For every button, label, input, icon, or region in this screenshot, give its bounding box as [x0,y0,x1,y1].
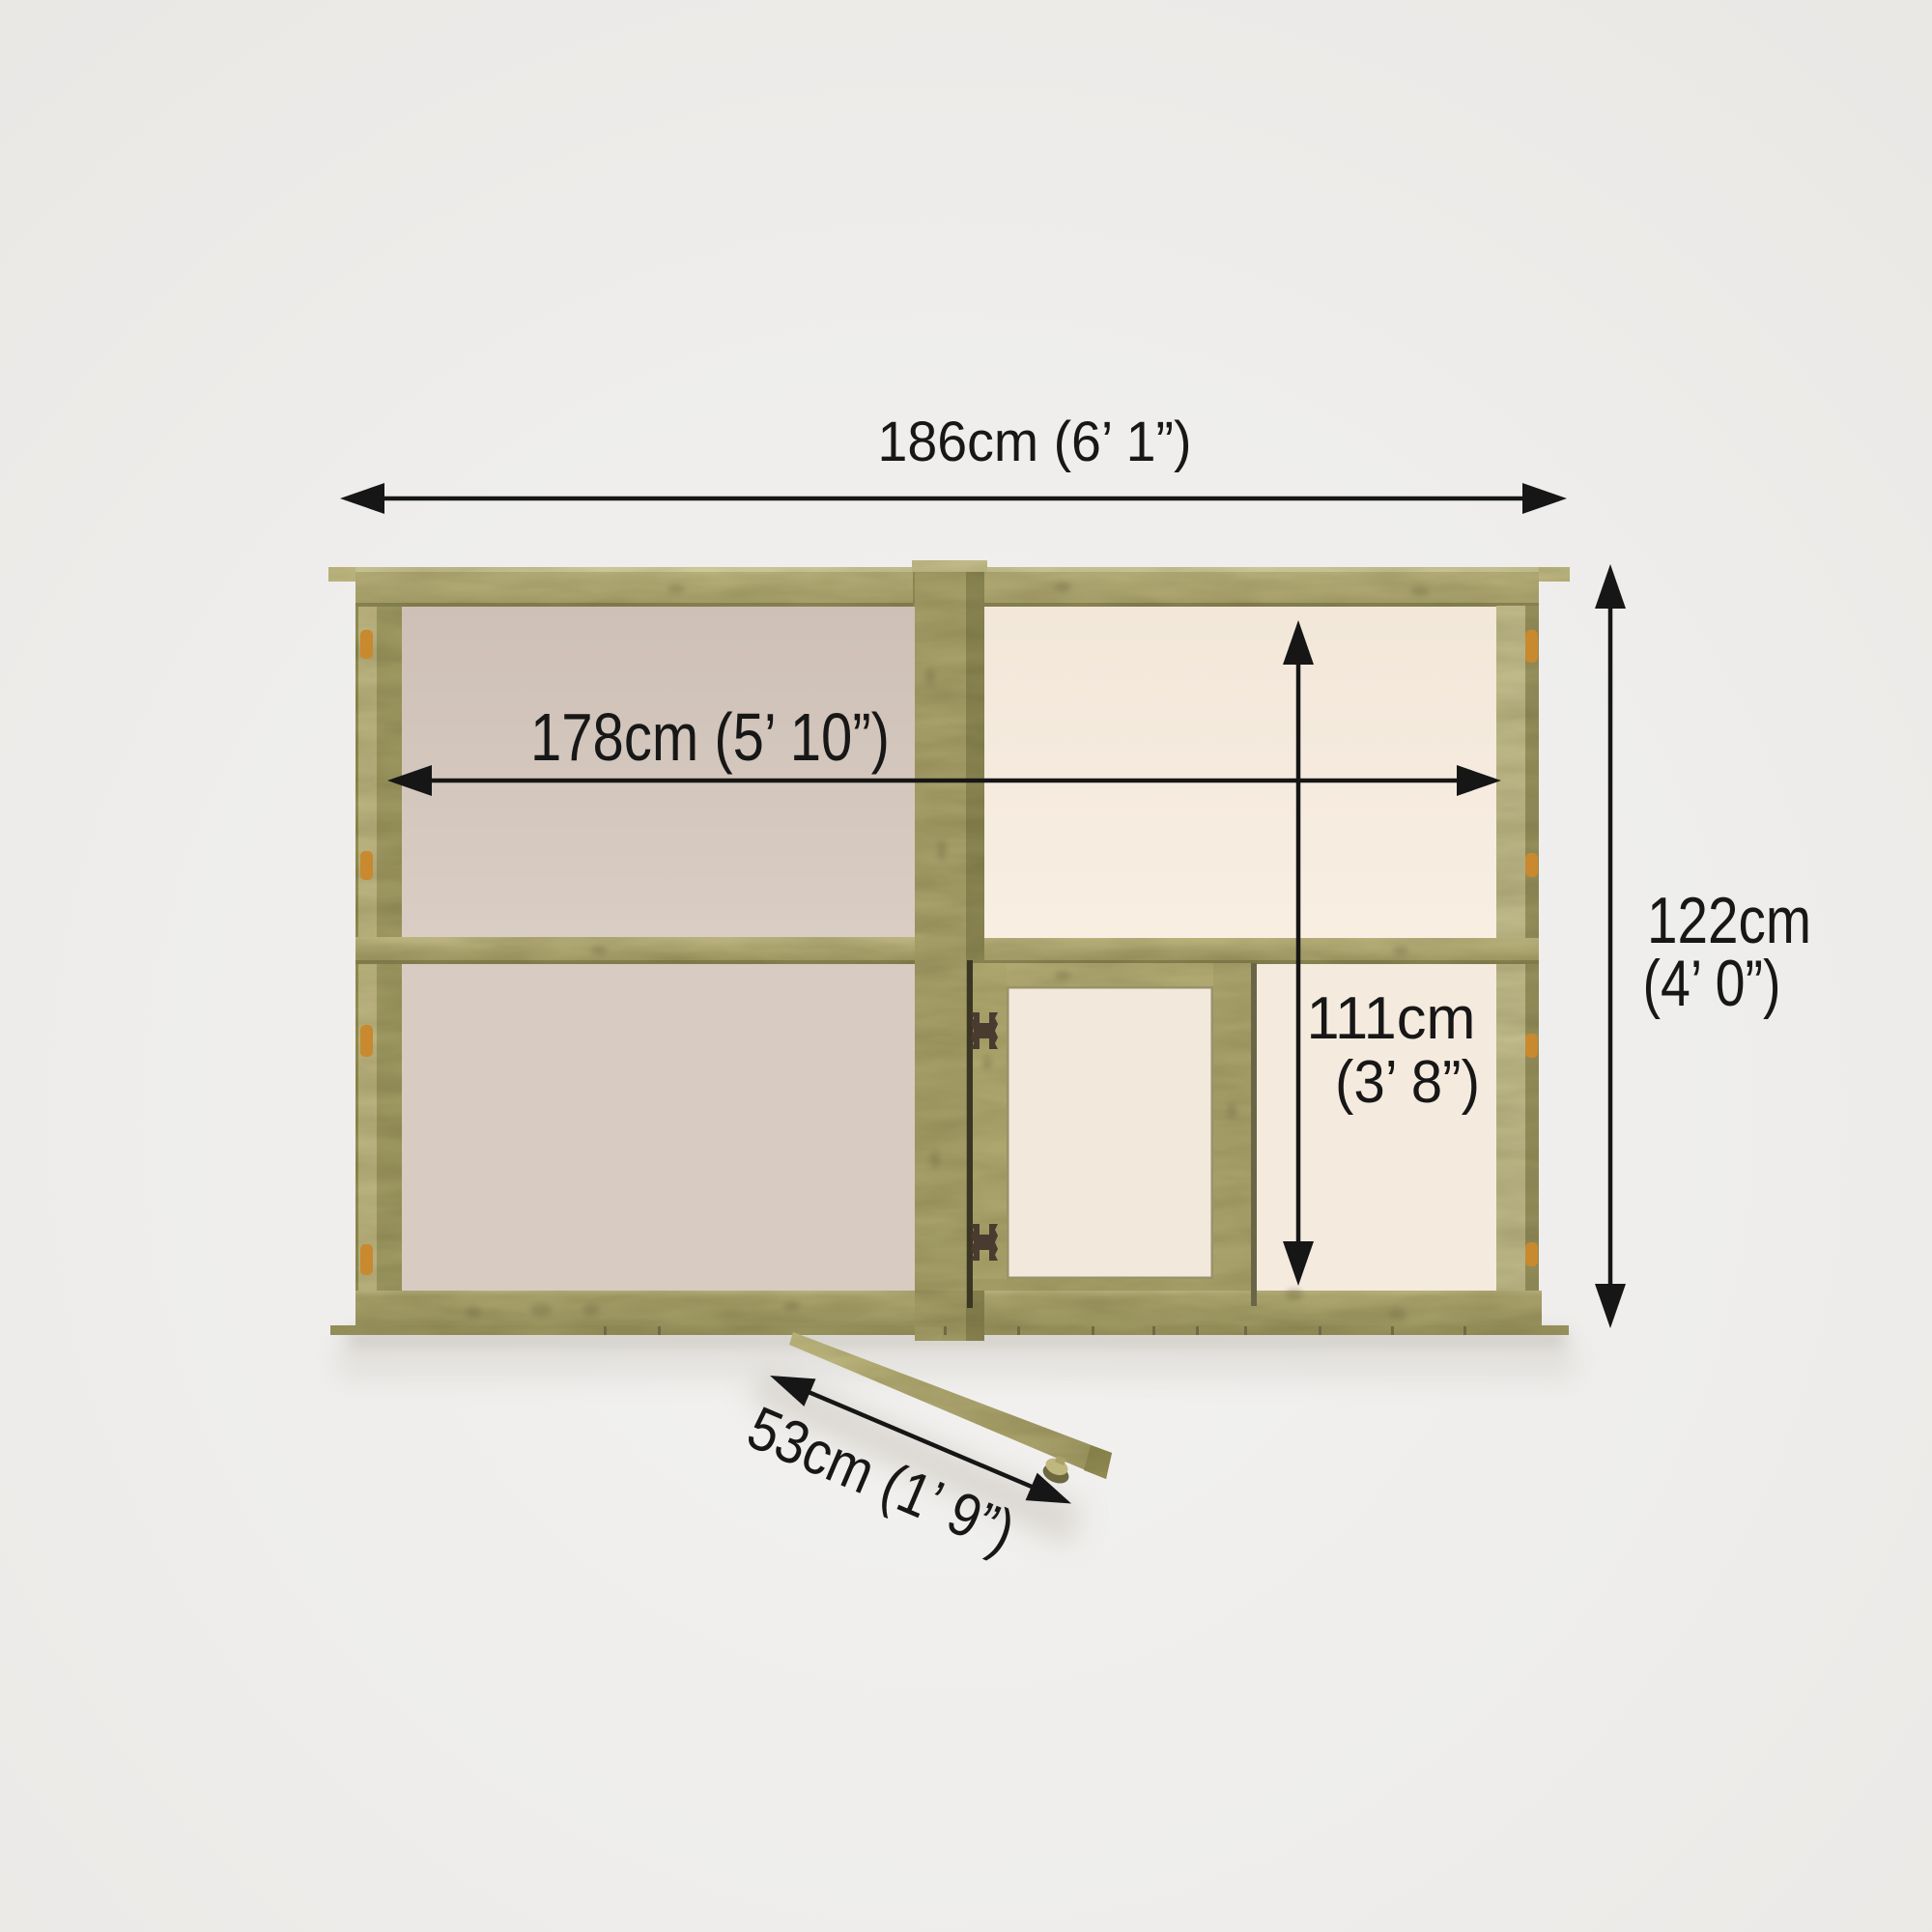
svg-text:111cm: 111cm [1307,985,1476,1052]
svg-text:(3’ 8”): (3’ 8”) [1335,1049,1480,1116]
svg-text:186cm (6’ 1”): 186cm (6’ 1”) [878,411,1192,473]
svg-text:(4’ 0”): (4’ 0”) [1643,947,1781,1020]
svg-text:178cm (5’ 10”): 178cm (5’ 10”) [530,699,890,775]
